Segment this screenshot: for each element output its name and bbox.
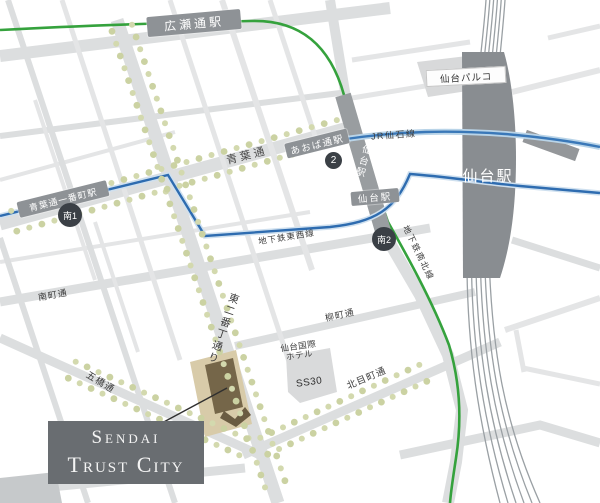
tree-icon: [264, 158, 271, 165]
tree-icon: [162, 120, 168, 126]
tree-icon: [188, 263, 194, 269]
tree-icon: [89, 207, 96, 214]
tree-icon: [204, 312, 210, 318]
tree-icon: [164, 400, 170, 406]
tree-icon: [158, 108, 165, 115]
tree-icon: [405, 367, 412, 374]
tree-icon: [221, 425, 228, 432]
tree-icon: [65, 375, 72, 382]
tree-icon: [284, 131, 290, 137]
tree-icon: [202, 176, 208, 182]
tree-icon: [137, 46, 143, 52]
tree-icon: [310, 430, 317, 437]
tree-icon: [73, 359, 79, 365]
tree-icon: [394, 372, 400, 378]
tree-icon: [252, 162, 258, 168]
tree-icon: [296, 127, 303, 134]
tree-icon: [141, 390, 147, 396]
tree-icon: [152, 190, 158, 196]
tree-icon: [199, 231, 206, 238]
tree-icon: [152, 394, 159, 401]
tree-icon: [299, 436, 305, 442]
tree-icon: [325, 404, 331, 410]
tree-icon: [139, 193, 146, 200]
road: [352, 42, 470, 60]
trust-city-title-line2: Trust City: [68, 452, 185, 478]
tree-icon: [237, 342, 243, 348]
tree-icon: [239, 165, 246, 172]
tree-icon: [170, 145, 176, 151]
tree-icon: [237, 410, 243, 416]
tree-icon: [158, 166, 164, 172]
road: [548, 26, 600, 38]
tree-icon: [271, 134, 278, 141]
tree-icon: [220, 293, 226, 299]
tree-icon: [257, 435, 263, 441]
tree-icon: [413, 384, 419, 390]
tree-icon: [200, 299, 207, 306]
tree-icon: [233, 398, 240, 405]
exit-2-badge: 2: [325, 152, 342, 169]
tree-icon: [232, 329, 239, 336]
tree-icon: [187, 194, 193, 200]
tree-icon: [122, 65, 128, 71]
sendai-trust-city-title-box: Sendai Trust City: [48, 421, 204, 484]
tree-icon: [258, 472, 265, 479]
tree-icon: [130, 90, 136, 96]
tree-icon: [378, 399, 385, 406]
tree-icon: [227, 169, 233, 175]
tree-icon: [146, 71, 152, 77]
tree-icon: [179, 238, 185, 244]
tree-icon: [145, 411, 151, 417]
tree-icon: [322, 425, 328, 431]
tree-icon: [309, 124, 315, 130]
tree-icon: [191, 206, 198, 213]
tree-icon: [142, 126, 149, 133]
tree-icon: [277, 155, 283, 161]
tree-icon: [39, 221, 46, 228]
tree-icon: [254, 460, 260, 466]
tree-icon: [129, 384, 136, 391]
tree-icon: [240, 354, 247, 361]
tree-icon: [355, 409, 362, 416]
tree-icon: [108, 180, 114, 186]
tree-icon: [127, 197, 133, 203]
tree-icon: [246, 141, 253, 148]
tree-icon: [390, 394, 396, 400]
tree-icon: [314, 408, 321, 415]
tree-icon: [26, 225, 32, 231]
tree-icon: [291, 419, 298, 426]
tree-icon: [191, 274, 198, 281]
tree-icon: [207, 255, 214, 262]
tree-icon: [175, 405, 182, 412]
sendai-access-map: 広瀬通駅 青葉通一番町駅 南1 あおば通駅 2 仙台駅 仙台駅 南2 仙台駅 J…: [0, 0, 600, 503]
tree-icon: [416, 362, 422, 368]
tree-icon: [209, 152, 215, 158]
tree-icon: [102, 204, 108, 210]
tree-icon: [184, 159, 190, 165]
tree-icon: [208, 324, 215, 331]
tree-icon: [259, 138, 265, 144]
tree-icon: [51, 218, 57, 224]
tree-icon: [212, 268, 218, 274]
tree-icon: [210, 420, 216, 426]
tree-icon: [113, 41, 119, 47]
tree-icon: [280, 424, 286, 430]
tree-icon: [134, 102, 141, 109]
tree-icon: [171, 213, 177, 219]
trust-city-title-line1: Sendai: [91, 427, 160, 449]
tree-icon: [8, 208, 14, 214]
tree-icon: [77, 380, 83, 386]
tree-icon: [243, 435, 250, 442]
road: [516, 330, 524, 372]
tree-icon: [232, 431, 238, 437]
exit-minami1-badge: 南1: [58, 203, 82, 227]
tree-icon: [189, 179, 196, 186]
tree-icon: [273, 453, 280, 460]
tree-icon: [133, 406, 140, 413]
tree-icon: [268, 429, 275, 436]
tree-icon: [367, 404, 373, 410]
tree-icon: [107, 374, 114, 381]
tree-icon: [215, 280, 222, 287]
tree-icon: [146, 139, 152, 145]
tree-icon: [203, 244, 209, 250]
tree-icon: [164, 186, 171, 193]
tree-icon: [229, 386, 235, 392]
tree-icon: [236, 452, 242, 458]
sendai-station-building: [462, 52, 516, 278]
tree-icon: [224, 373, 231, 380]
tree-icon: [149, 83, 156, 90]
tree-icon: [264, 451, 271, 458]
road: [512, 70, 600, 92]
road: [512, 240, 600, 268]
tree-icon: [321, 120, 328, 127]
tree-icon: [234, 145, 240, 151]
tree-icon: [262, 484, 268, 490]
tree-icon: [179, 170, 185, 176]
tree-icon: [336, 398, 343, 405]
tree-icon: [270, 441, 276, 447]
tree-icon: [13, 228, 20, 235]
tree-icon: [195, 219, 201, 225]
tree-icon: [129, 22, 135, 28]
tree-icon: [171, 162, 178, 169]
tree-icon: [167, 201, 174, 208]
tree-icon: [133, 34, 140, 41]
tree-icon: [117, 53, 124, 60]
tree-icon: [249, 447, 256, 454]
tree-icon: [214, 442, 220, 448]
tree-icon: [125, 77, 132, 84]
exit-minami2-badge: 南2: [372, 227, 396, 251]
tree-icon: [334, 117, 340, 123]
tree-icon: [344, 415, 350, 421]
tree-icon: [423, 378, 430, 385]
tree-icon: [371, 383, 377, 389]
tree-icon: [133, 173, 139, 179]
tree-icon: [241, 422, 248, 429]
tree-icon: [154, 96, 160, 102]
tree-icon: [158, 176, 165, 183]
tree-icon: [196, 287, 202, 293]
tree-icon: [221, 361, 227, 367]
tree-icon: [333, 420, 340, 427]
tree-icon: [253, 391, 259, 397]
tree-icon: [183, 250, 190, 257]
tree-icon: [287, 440, 294, 447]
tree-icon: [138, 115, 144, 121]
tree-icon: [141, 58, 148, 65]
sendai-station-label: 仙台駅: [460, 169, 516, 186]
tree-icon: [111, 395, 118, 402]
tree-icon: [282, 477, 289, 484]
tree-icon: [359, 388, 366, 395]
tree-icon: [118, 379, 124, 385]
tree-icon: [175, 225, 182, 232]
tree-icon: [182, 182, 189, 189]
tree-icon: [187, 410, 193, 416]
tree-icon: [245, 367, 251, 373]
tree-icon: [150, 151, 157, 158]
tree-icon: [278, 465, 284, 471]
tree-icon: [261, 416, 267, 422]
tree-icon: [225, 447, 232, 454]
tree-icon: [348, 393, 354, 399]
tree-icon: [276, 446, 282, 452]
tree-icon: [166, 132, 173, 139]
tree-icon: [146, 169, 153, 176]
tree-icon: [114, 200, 121, 207]
tree-icon: [121, 176, 128, 183]
tree-icon: [401, 388, 408, 395]
tree-icon: [257, 403, 264, 410]
tree-icon: [122, 401, 128, 407]
tree-icon: [214, 172, 221, 179]
road: [505, 298, 600, 330]
tree-icon: [196, 155, 203, 162]
tree-icon: [303, 414, 309, 420]
tree-icon: [109, 28, 116, 35]
road: [523, 368, 600, 384]
tree-icon: [177, 183, 183, 189]
tree-icon: [249, 379, 256, 386]
